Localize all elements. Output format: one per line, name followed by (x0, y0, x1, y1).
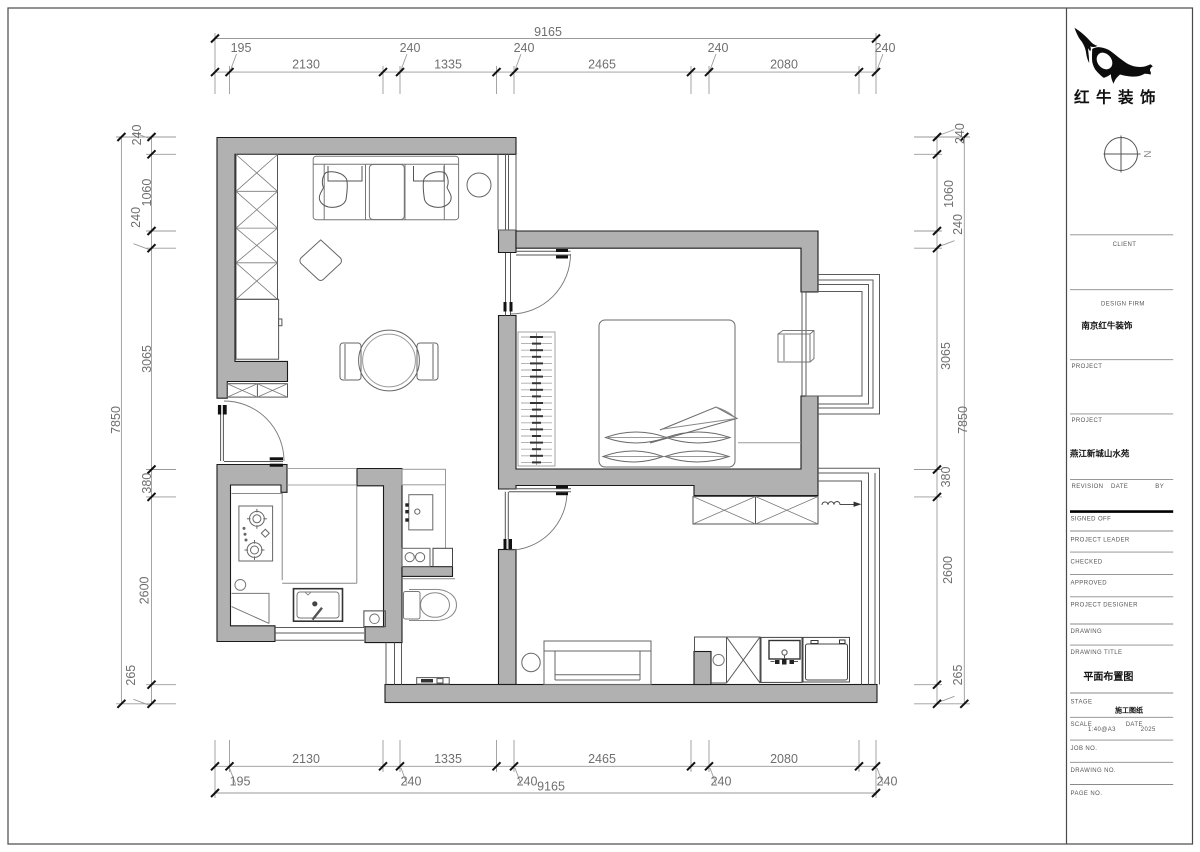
svg-text:240: 240 (401, 775, 422, 789)
svg-text:1060: 1060 (140, 179, 154, 207)
svg-text:施工图纸: 施工图纸 (1115, 706, 1143, 715)
svg-text:240: 240 (708, 41, 729, 55)
svg-text:380: 380 (140, 473, 154, 494)
svg-text:2080: 2080 (770, 752, 798, 766)
svg-text:240: 240 (875, 41, 896, 55)
svg-text:240: 240 (711, 775, 732, 789)
svg-text:N: N (1141, 151, 1152, 158)
svg-text:7850: 7850 (956, 406, 970, 434)
svg-text:DRAWING TITLE: DRAWING TITLE (1071, 650, 1123, 656)
svg-text:DRAWING NO.: DRAWING NO. (1071, 768, 1117, 774)
svg-text:240: 240 (517, 775, 538, 789)
svg-text:3065: 3065 (939, 342, 953, 370)
svg-text:240: 240 (951, 214, 965, 235)
svg-text:南京红牛装饰: 南京红牛装饰 (1081, 320, 1133, 330)
svg-text:DESIGN FIRM: DESIGN FIRM (1101, 302, 1145, 308)
svg-text:240: 240 (514, 41, 535, 55)
svg-text:2025: 2025 (1141, 727, 1156, 733)
svg-text:PROJECT DESIGNER: PROJECT DESIGNER (1071, 602, 1139, 608)
svg-text:9165: 9165 (537, 780, 565, 794)
svg-text:BY: BY (1155, 484, 1164, 490)
svg-text:265: 265 (124, 665, 138, 686)
svg-text:CLIENT: CLIENT (1113, 242, 1137, 248)
svg-text:JOB NO.: JOB NO. (1071, 746, 1098, 752)
svg-text:DRAWING: DRAWING (1071, 629, 1103, 635)
svg-text:PROJECT: PROJECT (1072, 364, 1103, 370)
svg-text:CHECKED: CHECKED (1071, 560, 1103, 566)
svg-text:380: 380 (939, 467, 953, 488)
svg-text:240: 240 (877, 775, 898, 789)
svg-text:195: 195 (231, 41, 252, 55)
svg-text:平面布置图: 平面布置图 (1083, 670, 1133, 683)
svg-text:REVISION: REVISION (1072, 484, 1104, 490)
svg-text:3065: 3065 (140, 345, 154, 373)
svg-text:2130: 2130 (292, 752, 320, 766)
svg-text:240: 240 (129, 207, 143, 228)
svg-text:9165: 9165 (534, 25, 562, 39)
svg-text:240: 240 (400, 41, 421, 55)
svg-text:STAGE: STAGE (1071, 699, 1093, 705)
svg-text:1335: 1335 (434, 58, 462, 72)
svg-text:2600: 2600 (941, 556, 955, 584)
svg-text:DATE: DATE (1111, 484, 1128, 490)
svg-text:2130: 2130 (292, 58, 320, 72)
svg-text:2600: 2600 (138, 576, 152, 604)
svg-text:195: 195 (230, 775, 251, 789)
svg-text:PAGE NO.: PAGE NO. (1071, 791, 1103, 797)
svg-text:7850: 7850 (109, 406, 123, 434)
svg-text:燕江新城山水苑: 燕江新城山水苑 (1070, 449, 1130, 459)
svg-text:265: 265 (951, 665, 965, 686)
svg-text:APPROVED: APPROVED (1071, 581, 1108, 587)
svg-text:1:40@A3: 1:40@A3 (1088, 727, 1116, 733)
svg-text:2465: 2465 (588, 58, 616, 72)
svg-text:1060: 1060 (942, 180, 956, 208)
svg-text:240: 240 (953, 123, 967, 144)
svg-text:PROJECT LEADER: PROJECT LEADER (1071, 537, 1130, 543)
svg-text:240: 240 (130, 125, 144, 146)
svg-text:2465: 2465 (588, 752, 616, 766)
svg-text:1335: 1335 (434, 752, 462, 766)
svg-text:PROJECT: PROJECT (1072, 418, 1103, 424)
svg-text:红牛装饰: 红牛装饰 (1074, 88, 1162, 107)
svg-text:2080: 2080 (770, 58, 798, 72)
svg-text:SIGNED OFF: SIGNED OFF (1071, 516, 1112, 522)
